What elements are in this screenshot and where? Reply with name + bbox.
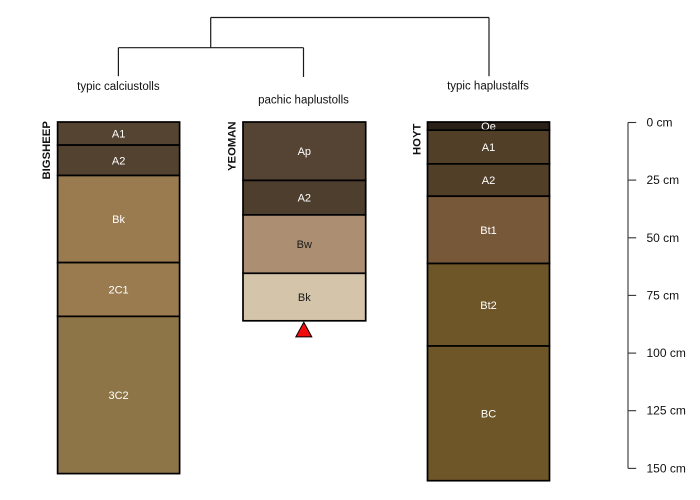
svg-text:pachic haplustolls: pachic haplustolls: [258, 95, 349, 107]
svg-text:YEOMAN: YEOMAN: [226, 121, 238, 171]
svg-text:BC: BC: [481, 408, 496, 420]
svg-text:25 cm: 25 cm: [647, 173, 680, 187]
svg-text:150 cm: 150 cm: [647, 461, 686, 475]
svg-text:Bk: Bk: [298, 292, 311, 304]
svg-text:A2: A2: [298, 193, 311, 205]
svg-text:Bt2: Bt2: [480, 300, 497, 312]
svg-text:typic haplustalfs: typic haplustalfs: [447, 81, 529, 93]
svg-text:Bt1: Bt1: [480, 225, 497, 237]
svg-text:A2: A2: [482, 175, 495, 187]
svg-text:125 cm: 125 cm: [647, 404, 686, 418]
svg-text:Ap: Ap: [298, 146, 311, 158]
svg-text:0 cm: 0 cm: [647, 116, 673, 130]
svg-text:3C2: 3C2: [109, 390, 129, 402]
svg-text:75 cm: 75 cm: [647, 288, 680, 302]
svg-text:Bk: Bk: [112, 214, 125, 226]
svg-text:HOYT: HOYT: [412, 124, 424, 155]
svg-text:50 cm: 50 cm: [647, 231, 680, 245]
svg-text:typic calciustolls: typic calciustolls: [77, 81, 160, 93]
svg-text:Bw: Bw: [297, 239, 312, 251]
svg-text:A2: A2: [112, 155, 125, 167]
svg-text:A1: A1: [482, 142, 495, 154]
svg-text:2C1: 2C1: [109, 285, 129, 297]
svg-text:BIGSHEEP: BIGSHEEP: [41, 121, 53, 180]
svg-text:A1: A1: [112, 129, 125, 141]
svg-text:100 cm: 100 cm: [647, 346, 686, 360]
